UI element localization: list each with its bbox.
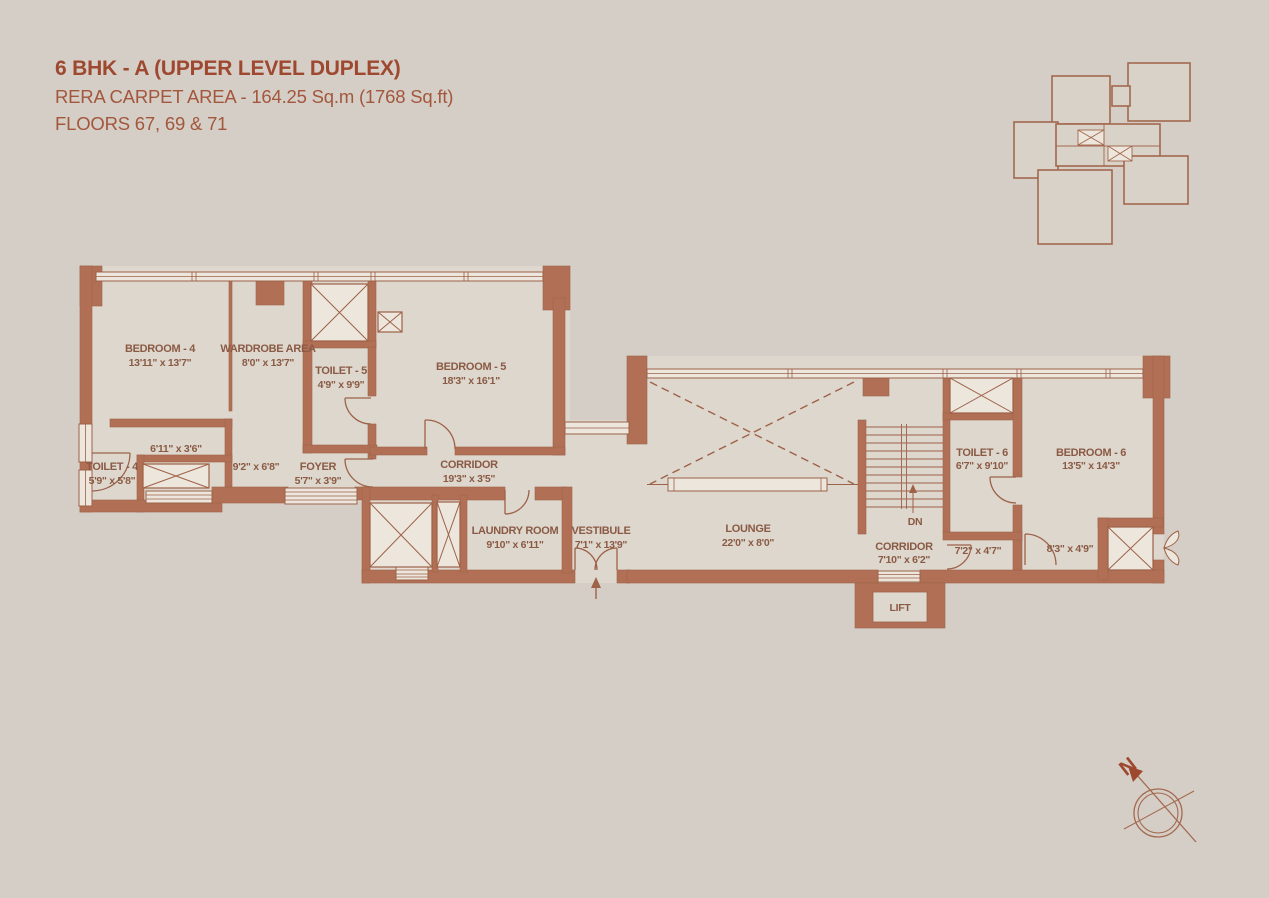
room-name: TOILET - 5 bbox=[315, 365, 367, 377]
room-dim: 9'10" x 6'11" bbox=[486, 539, 544, 551]
room-label-corridor-lower: CORRIDOR 7'10" x 6'2" bbox=[875, 541, 933, 566]
room-name: LOUNGE bbox=[725, 523, 770, 535]
key-plan-thumbnail bbox=[1014, 63, 1190, 244]
room-label-passage-9-2: 9'2" x 6'8" bbox=[233, 461, 280, 473]
floor-plan-page: { "title": { "line1": "6 BHK - A (UPPER … bbox=[0, 0, 1269, 898]
room-dim: 8'3" x 4'9" bbox=[1047, 543, 1094, 555]
room-dim: 13'11" x 13'7" bbox=[129, 357, 192, 369]
room-label-passage-7-2: 7'2" x 4'7" bbox=[955, 545, 1002, 557]
room-dim: 18'3" x 16'1" bbox=[442, 375, 500, 387]
room-dim: 6'11" x 3'6" bbox=[150, 443, 202, 455]
room-name: TOILET - 4 bbox=[86, 461, 139, 473]
void-railing bbox=[647, 478, 858, 491]
room-label-bedroom-6: BEDROOM - 6 13'5" x 14'3" bbox=[1056, 447, 1126, 472]
room-dim: 7'10" x 6'2" bbox=[878, 554, 931, 566]
room-dim: 7'1" x 13'9" bbox=[575, 539, 628, 551]
room-dim: 19'3" x 3'5" bbox=[443, 473, 496, 485]
room-name: VESTIBULE bbox=[571, 525, 630, 537]
room-dim: 5'9" x 5'8" bbox=[89, 475, 136, 487]
room-label-toilet-6: TOILET - 6 6'7" x 9'10" bbox=[956, 447, 1009, 472]
room-name: CORRIDOR bbox=[875, 541, 933, 553]
room-label-passage-8-3: 8'3" x 4'9" bbox=[1047, 543, 1094, 555]
room-dim: 5'7" x 3'9" bbox=[295, 475, 342, 487]
room-dim: 8'0" x 13'7" bbox=[242, 357, 295, 369]
north-compass: N bbox=[1115, 753, 1196, 842]
room-dim: 7'2" x 4'7" bbox=[955, 545, 1002, 557]
lift-label: LIFT bbox=[890, 602, 912, 614]
room-name: LAUNDRY ROOM bbox=[472, 525, 559, 537]
room-label-bay: 6'11" x 3'6" bbox=[150, 443, 202, 455]
room-name: FOYER bbox=[300, 461, 337, 473]
room-name: TOILET - 6 bbox=[956, 447, 1008, 459]
stairs-dn-label: DN bbox=[908, 516, 923, 528]
ac-louvre-flaps bbox=[1164, 531, 1179, 565]
room-dim: 22'0" x 8'0" bbox=[722, 537, 775, 549]
room-name: BEDROOM - 5 bbox=[436, 361, 506, 373]
room-name: BEDROOM - 4 bbox=[125, 343, 196, 355]
room-dim: 9'2" x 6'8" bbox=[233, 461, 280, 473]
room-dim: 4'9" x 9'9" bbox=[318, 379, 365, 391]
room-name: CORRIDOR bbox=[440, 459, 498, 471]
floor-plan: BEDROOM - 4 13'11" x 13'7" WARDROBE AREA… bbox=[0, 0, 1269, 898]
room-dim: 6'7" x 9'10" bbox=[956, 460, 1009, 472]
room-dim: 13'5" x 14'3" bbox=[1062, 460, 1120, 472]
room-name: BEDROOM - 6 bbox=[1056, 447, 1126, 459]
room-name: WARDROBE AREA bbox=[220, 343, 316, 355]
